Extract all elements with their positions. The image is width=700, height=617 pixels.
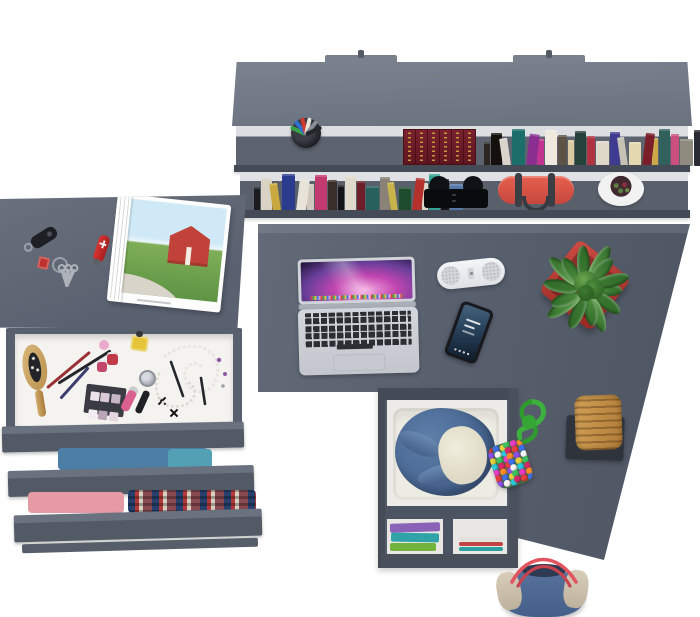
lock-screen-icons xyxy=(454,348,470,355)
book-spine xyxy=(315,175,327,211)
magazine-caption xyxy=(137,299,171,305)
wall-hook xyxy=(358,50,364,58)
magazine-stack xyxy=(459,537,503,541)
book-spine xyxy=(366,186,379,211)
camera-detail xyxy=(452,194,456,196)
folded-purple-shirt xyxy=(390,522,440,533)
lock-screen-text xyxy=(464,324,475,329)
book-spine xyxy=(254,187,260,211)
book-spine xyxy=(345,176,356,211)
pencil-cup xyxy=(291,118,321,148)
magazine-stack xyxy=(459,542,503,546)
nail-polish xyxy=(107,352,118,365)
lock-screen-text xyxy=(466,318,481,325)
cord-knot xyxy=(522,415,536,429)
eyeshadow-pan xyxy=(88,409,98,419)
eyeshadow-pan xyxy=(100,392,110,402)
book-spine xyxy=(282,174,295,211)
leather-volume xyxy=(464,130,475,164)
book-spine xyxy=(694,130,700,166)
brush-handle xyxy=(34,389,46,417)
book-spine xyxy=(328,180,337,211)
key-tag xyxy=(37,256,50,270)
succulent-rosette xyxy=(578,285,594,301)
open-makeup-drawer xyxy=(6,328,242,432)
scene-room-top-view xyxy=(0,0,700,617)
black-camera xyxy=(424,176,488,208)
fob-button xyxy=(46,231,53,238)
bag-handles xyxy=(498,556,588,596)
eyeshadow-palette xyxy=(83,384,126,418)
white-cactus-pot xyxy=(598,172,644,206)
pedestal-shelf-divider xyxy=(385,506,509,519)
leather-volume xyxy=(428,130,439,164)
leather-volume xyxy=(452,130,463,164)
eyeshadow-pan xyxy=(98,410,108,420)
eyeshadow-pan xyxy=(109,411,119,421)
red-duffel-bag xyxy=(498,176,574,204)
book-spine xyxy=(338,185,344,211)
speaker-grille xyxy=(481,261,502,282)
laptop-screen-wallpaper xyxy=(301,260,413,302)
nail-polish xyxy=(97,360,107,372)
bookshelf-upper-shelf xyxy=(236,126,688,167)
eyeshadow-pan xyxy=(90,391,100,401)
pedestal-frame xyxy=(443,519,453,554)
book-spine xyxy=(357,181,365,211)
laptop-trackpad xyxy=(333,353,385,371)
duffel-strap xyxy=(515,173,522,207)
book-spine xyxy=(596,141,609,166)
book-spine xyxy=(399,187,411,211)
eyeshadow-pan xyxy=(111,393,121,403)
book-row-upper xyxy=(484,129,700,166)
camera-body xyxy=(424,189,488,208)
book-spine xyxy=(568,140,574,166)
pocket-knife xyxy=(92,234,111,263)
book-spine xyxy=(484,142,490,166)
book-spine xyxy=(545,130,557,166)
folded-teal-shirt xyxy=(391,533,439,543)
laptop-body xyxy=(298,306,420,375)
pearl-necklaces xyxy=(131,334,233,424)
book-spine xyxy=(575,131,586,166)
bookshelf-lower-shelf xyxy=(240,172,688,212)
book-spine xyxy=(659,129,670,166)
bookshelf-top-panel xyxy=(232,62,692,126)
leather-volume xyxy=(404,130,415,164)
shelf-edge xyxy=(234,165,690,172)
cactus-plant xyxy=(610,180,632,196)
magazine-photo-red-barn xyxy=(122,199,227,303)
car-key-fob xyxy=(29,225,60,251)
dresser-top-surface xyxy=(0,195,246,329)
knife-tools xyxy=(93,258,101,266)
pedestal-frame xyxy=(378,388,518,400)
magazine-stack xyxy=(459,547,503,551)
macbook-laptop xyxy=(297,256,420,375)
wicker-stool-seat xyxy=(574,394,623,451)
denim-tote-bag xyxy=(498,556,588,617)
drawer-interior xyxy=(15,334,233,426)
book-spine xyxy=(671,134,679,166)
shelf-edge xyxy=(238,210,690,218)
book-spine xyxy=(512,129,525,166)
red-barn xyxy=(167,224,211,267)
laptop-display xyxy=(298,257,416,305)
country-road xyxy=(122,265,185,302)
wall-hook xyxy=(546,50,552,58)
spacebar-key xyxy=(337,344,373,350)
open-magazine xyxy=(107,193,232,312)
folded-green-shirt xyxy=(390,543,436,551)
fob-ring xyxy=(22,241,34,253)
pedestal-frame xyxy=(381,554,515,568)
camera-detail xyxy=(452,200,456,202)
speaker-logo xyxy=(470,272,473,275)
pedestal-frame xyxy=(378,388,385,568)
speaker-grille xyxy=(440,265,461,286)
book-spine xyxy=(680,139,693,166)
leather-volume xyxy=(440,130,451,164)
leather-book-set xyxy=(403,129,476,165)
folded-pink-clothes xyxy=(28,492,124,513)
perfume-bottle xyxy=(99,340,109,350)
pedestal-open-shelf-bottom xyxy=(387,519,507,554)
succulent-plant xyxy=(540,237,632,329)
lock-screen-text xyxy=(462,330,475,336)
book-spine xyxy=(587,136,595,166)
leather-volume xyxy=(416,130,427,164)
book-spine xyxy=(629,142,641,166)
drawer-front xyxy=(14,509,263,543)
book-spine xyxy=(558,135,567,166)
